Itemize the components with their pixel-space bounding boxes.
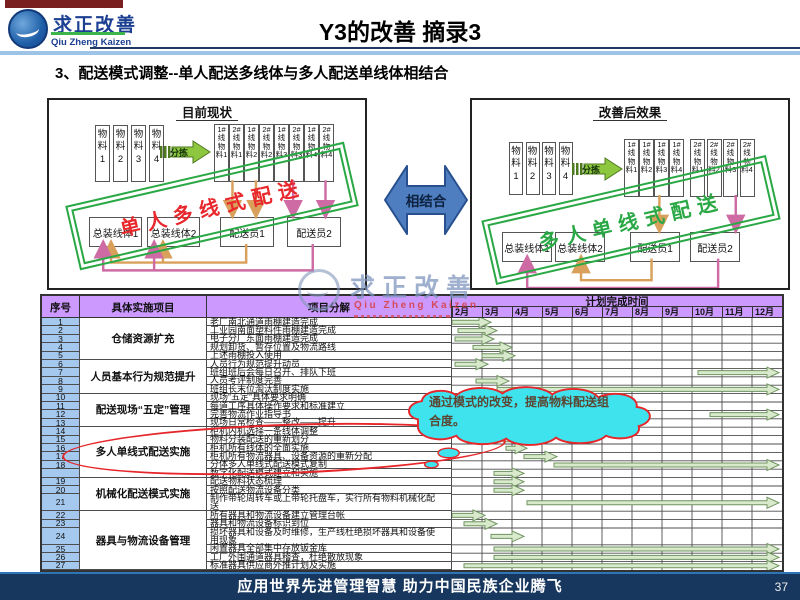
- month-header: 8月: [632, 307, 662, 318]
- month-header: 7月: [602, 307, 632, 318]
- group-cell: 人员基本行为规范提升: [80, 360, 207, 394]
- footer-slogan: 应用世界先进管理智慧 助力中国民族企业腾飞: [0, 574, 800, 600]
- col-header-no: 序号: [42, 296, 80, 318]
- month-header: 10月: [692, 307, 722, 318]
- month-header: 5月: [542, 307, 572, 318]
- month-header: 6月: [572, 307, 602, 318]
- page-number: 37: [775, 574, 788, 600]
- row-item: 制作带轮周转车或上带轮托盘车，实行所有物料机械化配送: [207, 494, 452, 511]
- callout-cloud: 通过模式的改变，提高物料配送组合度。: [395, 382, 675, 476]
- courier-box: 配送员2: [690, 232, 740, 262]
- watermark-text: 求正改善: [350, 268, 478, 304]
- footer-bar: 应用世界先进管理智慧 助力中国民族企业腾飞 37: [0, 572, 800, 600]
- group-cell: 仓储资源扩充: [80, 318, 207, 360]
- watermark: 求正改善 Qiu Zheng Kaizen: [298, 266, 518, 322]
- page-title: Y3的改善 摘录3: [0, 13, 800, 47]
- group-cell: 配送现场“五定”管理: [80, 394, 207, 428]
- slide-subtitle: 3、配送模式调整--单人配送多线体与多人配送单线体相结合: [55, 62, 448, 83]
- row-number: 21: [42, 494, 80, 511]
- panel-improved-state: 改善后效果 物料1物料2物料3物料4 分拣 1#线物料11#线物料21#线物料3…: [470, 98, 790, 290]
- slide: 求正改善 Qiu Zheng Kaizen Y3的改善 摘录3 3、配送模式调整…: [0, 0, 800, 600]
- row-number: 20: [42, 486, 80, 494]
- month-header: 12月: [752, 307, 782, 318]
- watermark-subtext: Qiu Zheng Kaizen: [354, 300, 478, 311]
- logo-top-accent: [5, 0, 123, 8]
- row-item: 标准器具供应商外推计划及实施: [207, 562, 452, 570]
- col-header-group: 具体实施项目: [80, 296, 207, 318]
- title-rule-navy: [90, 47, 800, 49]
- row-number: 23: [42, 520, 80, 528]
- month-header: 9月: [662, 307, 692, 318]
- panel-current-state: 目前现状 物料1物料2物料3物料4 分拣 1#线物料12#线物料11#线物料22…: [47, 98, 367, 290]
- row-number: 27: [42, 562, 80, 570]
- combine-label: 相结合: [383, 152, 469, 248]
- row-number: 24: [42, 528, 80, 545]
- callout-text: 通过模式的改变，提高物料配送组合度。: [429, 393, 615, 430]
- title-rule-blue: [0, 51, 800, 55]
- courier-box: 配送员2: [287, 217, 341, 247]
- group-cell: 机械化配送模式实施: [80, 478, 207, 512]
- watermark-logo-icon: [298, 269, 340, 311]
- group-cell: 器具与物流设备管理: [80, 511, 207, 570]
- watermark-tagline: [354, 315, 450, 318]
- month-header: 11月: [722, 307, 752, 318]
- combine-arrow: 相结合: [383, 152, 469, 248]
